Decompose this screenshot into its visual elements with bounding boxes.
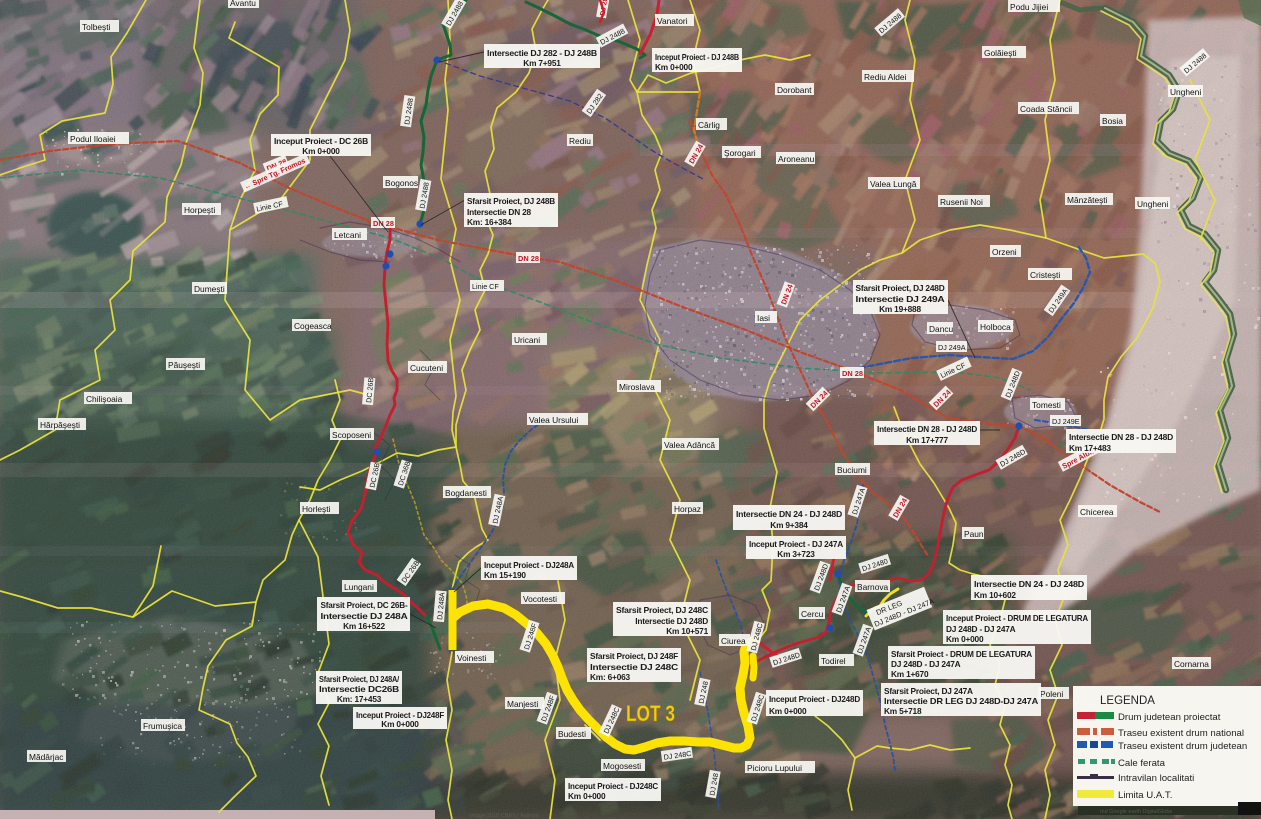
svg-text:Chilişoaia: Chilişoaia xyxy=(86,394,123,404)
svg-text:DJ 249E: DJ 249E xyxy=(1052,417,1080,426)
svg-text:Km 17+777: Km 17+777 xyxy=(906,435,948,445)
svg-text:Voinesti: Voinesti xyxy=(457,653,486,663)
svg-text:Traseu existent drum judetean: Traseu existent drum judetean xyxy=(1118,741,1247,752)
svg-text:Intersectie DC26B: Intersectie DC26B xyxy=(319,684,399,694)
svg-text:Traseu existent drum national: Traseu existent drum national xyxy=(1118,728,1244,739)
svg-text:Dumeşti: Dumeşti xyxy=(194,284,225,294)
svg-text:Km: 6+063: Km: 6+063 xyxy=(590,672,631,682)
svg-text:Km 0+000: Km 0+000 xyxy=(568,791,606,801)
svg-text:Tomesti: Tomesti xyxy=(1032,400,1061,410)
svg-text:Cristeşti: Cristeşti xyxy=(1030,270,1060,280)
svg-text:Bosia: Bosia xyxy=(1102,116,1123,126)
svg-text:Km 0+000: Km 0+000 xyxy=(946,634,984,644)
svg-text:Holboca: Holboca xyxy=(980,322,1011,332)
svg-text:Buciumi: Buciumi xyxy=(837,465,867,475)
svg-text:Şorogari: Şorogari xyxy=(724,148,756,158)
svg-text:Valea Adâncă: Valea Adâncă xyxy=(664,440,715,450)
svg-text:Cucuteni: Cucuteni xyxy=(410,363,443,373)
svg-text:Km 5+718: Km 5+718 xyxy=(884,706,922,716)
svg-text:DJ 248D - DJ 247A: DJ 248D - DJ 247A xyxy=(891,659,961,669)
svg-text:Intersectie DJ 282 - DJ 248B: Intersectie DJ 282 - DJ 248B xyxy=(487,48,597,58)
svg-text:Km 0+000: Km 0+000 xyxy=(769,706,807,716)
svg-text:Bogdanesti: Bogdanesti xyxy=(445,488,487,498)
svg-text:Inceput Proiect - DC 26B: Inceput Proiect - DC 26B xyxy=(274,136,368,146)
svg-text:Image 2016 CNES / Astrium: Image 2016 CNES / Astrium xyxy=(470,813,539,819)
svg-text:Mânzăteşti: Mânzăteşti xyxy=(1067,195,1108,205)
svg-text:Km 10+602: Km 10+602 xyxy=(974,590,1016,600)
svg-text:LEGENDA: LEGENDA xyxy=(1100,695,1155,707)
svg-text:Valea Lungă: Valea Lungă xyxy=(870,179,917,189)
svg-text:LOT 3: LOT 3 xyxy=(626,701,675,726)
svg-text:DJ 248D - DJ 247A: DJ 248D - DJ 247A xyxy=(946,624,1016,634)
svg-text:Rediu Aldei: Rediu Aldei xyxy=(864,72,907,82)
svg-text:Frumuşica: Frumuşica xyxy=(143,721,182,731)
svg-text:Mădârjac: Mădârjac xyxy=(29,752,63,762)
svg-text:Chicerea: Chicerea xyxy=(1080,507,1114,517)
svg-text:Intersectie DN 24 - DJ 248D: Intersectie DN 24 - DJ 248D xyxy=(736,509,842,519)
svg-text:Drum judetean proiectat: Drum judetean proiectat xyxy=(1118,712,1221,723)
svg-text:Km 0+000: Km 0+000 xyxy=(381,719,419,729)
svg-text:Ungheni: Ungheni xyxy=(1137,199,1168,209)
svg-text:Limita U.A.T.: Limita U.A.T. xyxy=(1118,790,1172,801)
svg-text:Inceput Proiect - DRUM DE LEGA: Inceput Proiect - DRUM DE LEGATURA xyxy=(946,613,1088,623)
svg-text:Cornarna: Cornarna xyxy=(1174,659,1209,669)
svg-text:Inceput Proiect - DJ 248B: Inceput Proiect - DJ 248B xyxy=(655,52,739,62)
svg-text:Km 9+384: Km 9+384 xyxy=(770,520,808,530)
svg-text:Horpeşti: Horpeşti xyxy=(184,205,215,215)
svg-text:Intersectie DJ 248C: Intersectie DJ 248C xyxy=(590,662,678,672)
svg-text:Intersectie DJ 249A: Intersectie DJ 249A xyxy=(856,294,945,304)
svg-text:Inceput Proiect - DJ 247A: Inceput Proiect - DJ 247A xyxy=(749,539,843,549)
svg-text:Cale ferata: Cale ferata xyxy=(1118,758,1166,769)
svg-text:Km 0+000: Km 0+000 xyxy=(655,62,693,72)
svg-text:Intersectie DR LEG DJ 248D-DJ: Intersectie DR LEG DJ 248D-DJ 247A xyxy=(884,696,1038,706)
svg-text:Km 1+670: Km 1+670 xyxy=(891,669,929,679)
svg-text:Linie CF: Linie CF xyxy=(472,282,499,291)
svg-text:Bogonos: Bogonos xyxy=(385,178,418,188)
svg-text:Letcani: Letcani xyxy=(334,230,361,240)
svg-text:Intersectie DN 28 - DJ 248D: Intersectie DN 28 - DJ 248D xyxy=(877,424,977,434)
svg-text:Podu Jijiei: Podu Jijiei xyxy=(1010,2,1048,12)
svg-text:Tolbeşti: Tolbeşti xyxy=(82,22,111,32)
svg-text:Sfarsit Proiect, DC 26B-: Sfarsit Proiect, DC 26B- xyxy=(321,600,408,610)
svg-text:Orzeni: Orzeni xyxy=(992,247,1017,257)
svg-text:Horleşti: Horleşti xyxy=(302,504,331,514)
svg-text:Ungheni: Ungheni xyxy=(1170,87,1201,97)
svg-text:Sfarsit Proiect, DJ 248B: Sfarsit Proiect, DJ 248B xyxy=(467,196,555,206)
svg-text:Vocotesti: Vocotesti xyxy=(523,594,557,604)
svg-text:Sfarsit Proiect, DJ 248A/: Sfarsit Proiect, DJ 248A/ xyxy=(319,674,400,684)
svg-text:Mogosesti: Mogosesti xyxy=(603,761,641,771)
svg-text:Păuşeşti: Păuşeşti xyxy=(168,360,200,370)
svg-text:Km 16+522: Km 16+522 xyxy=(343,621,385,631)
svg-text:Sfarsit Proiect - DRUM DE LEGA: Sfarsit Proiect - DRUM DE LEGATURA xyxy=(891,649,1032,659)
svg-text:Sfarsit Proiect, DJ 248F: Sfarsit Proiect, DJ 248F xyxy=(590,651,678,661)
svg-text:Poleni: Poleni xyxy=(1040,689,1063,699)
svg-text:Uricani: Uricani xyxy=(514,335,540,345)
svg-text:Horpaz: Horpaz xyxy=(674,504,701,514)
svg-text:Intravilan localitati: Intravilan localitati xyxy=(1118,773,1194,784)
svg-text:Cercu: Cercu xyxy=(801,609,824,619)
svg-text:Budesti: Budesti xyxy=(558,729,586,739)
svg-text:Hărpăşeşti: Hărpăşeşti xyxy=(40,420,80,430)
svg-text:Km 15+190: Km 15+190 xyxy=(484,570,526,580)
svg-text:Barnova: Barnova xyxy=(857,582,889,592)
svg-text:Lungani: Lungani xyxy=(344,582,374,592)
svg-text:Miroslava: Miroslava xyxy=(619,382,655,392)
svg-text:Intersectie DN 28 - DJ 248D: Intersectie DN 28 - DJ 248D xyxy=(1069,432,1173,442)
svg-text:Vanatori: Vanatori xyxy=(657,16,688,26)
svg-text:Km: 16+384: Km: 16+384 xyxy=(467,217,512,227)
svg-text:Valea Ursului: Valea Ursului xyxy=(529,415,578,425)
svg-text:Coada Stăncii: Coada Stăncii xyxy=(1020,104,1072,114)
svg-text:Dancu: Dancu xyxy=(929,324,954,334)
svg-text:DJ 249A: DJ 249A xyxy=(938,343,966,352)
svg-text:Km 19+888: Km 19+888 xyxy=(879,304,921,314)
svg-text:Rediu: Rediu xyxy=(569,136,591,146)
svg-text:Km 17+483: Km 17+483 xyxy=(1069,443,1111,453)
svg-text:Picioru Lupului: Picioru Lupului xyxy=(747,763,802,773)
svg-text:Sfarsit Proiect, DJ 247A: Sfarsit Proiect, DJ 247A xyxy=(884,686,973,696)
svg-text:Km 3+723: Km 3+723 xyxy=(777,549,815,559)
svg-text:Golăieşti: Golăieşti xyxy=(984,48,1017,58)
svg-text:Km: 17+453: Km: 17+453 xyxy=(337,694,382,704)
svg-text:Ciurea: Ciurea xyxy=(721,636,746,646)
svg-text:Manjesti: Manjesti xyxy=(507,699,538,709)
svg-text:DN 28: DN 28 xyxy=(518,254,539,263)
svg-text:Intersectie DJ 248A: Intersectie DJ 248A xyxy=(321,611,408,621)
svg-text:Inceput Proiect - DJ248D: Inceput Proiect - DJ248D xyxy=(769,694,860,704)
svg-text:Inceput Proiect - DJ248A: Inceput Proiect - DJ248A xyxy=(484,560,574,570)
svg-text:md Google earth DigitalGlobe: md Google earth DigitalGlobe xyxy=(1100,809,1172,815)
svg-text:Avantu: Avantu xyxy=(230,0,256,8)
svg-text:DN 28: DN 28 xyxy=(842,369,863,378)
svg-text:Todirel: Todirel xyxy=(821,656,846,666)
svg-text:Rusenii Noi: Rusenii Noi xyxy=(940,197,983,207)
svg-text:Intersectie DN 24 - DJ 248D: Intersectie DN 24 - DJ 248D xyxy=(974,579,1084,589)
svg-text:Iasi: Iasi xyxy=(757,313,770,323)
svg-text:Km 0+000: Km 0+000 xyxy=(302,146,340,156)
svg-text:Sfarsit Proiect, DJ 248C: Sfarsit Proiect, DJ 248C xyxy=(616,605,708,615)
svg-text:Km 7+951: Km 7+951 xyxy=(523,58,561,68)
svg-text:Podul Iloaiei: Podul Iloaiei xyxy=(70,134,116,144)
svg-text:Paun: Paun xyxy=(964,529,984,539)
svg-text:Dorobant: Dorobant xyxy=(777,85,812,95)
svg-text:Cârlig: Cârlig xyxy=(698,120,720,130)
svg-text:Sfarsit Proiect, DJ 248D: Sfarsit Proiect, DJ 248D xyxy=(856,283,945,293)
svg-text:Km 10+571: Km 10+571 xyxy=(666,626,708,636)
svg-text:Cogeasca: Cogeasca xyxy=(294,321,332,331)
svg-text:Aroneanu: Aroneanu xyxy=(778,154,815,164)
svg-text:Intersectie DN 28: Intersectie DN 28 xyxy=(467,207,532,217)
svg-text:Intersectie DJ 248D: Intersectie DJ 248D xyxy=(635,616,708,626)
svg-text:Inceput Proiect - DJ248C: Inceput Proiect - DJ248C xyxy=(568,781,658,791)
svg-text:Scoposeni: Scoposeni xyxy=(332,430,371,440)
